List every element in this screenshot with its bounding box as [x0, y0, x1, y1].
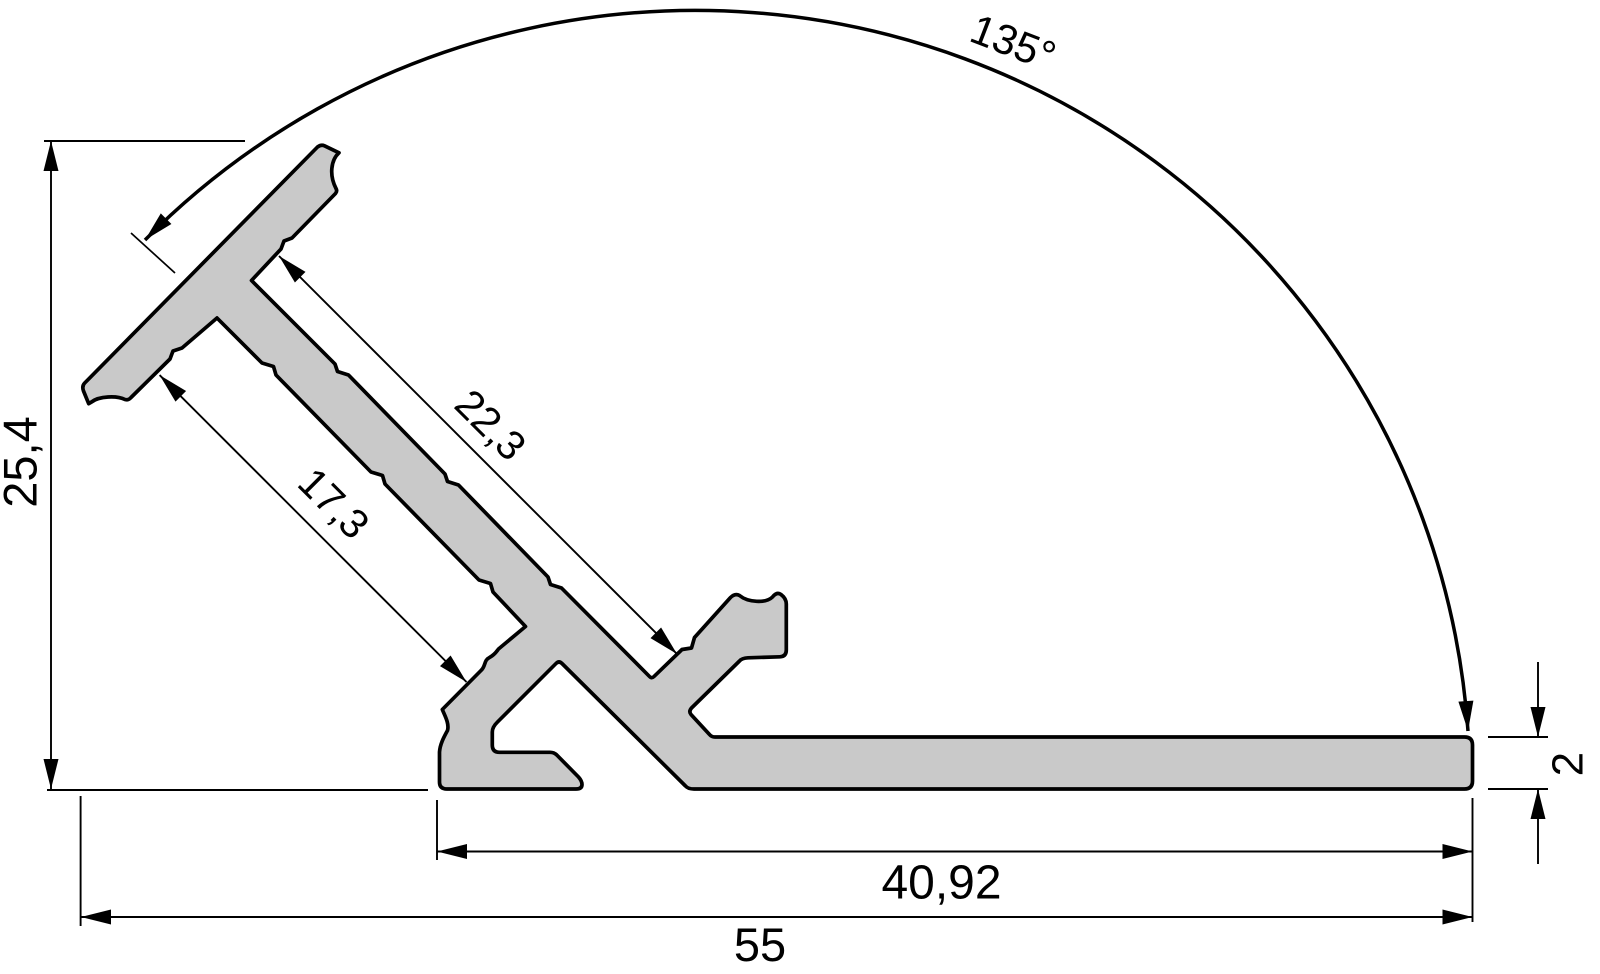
svg-text:40,92: 40,92: [881, 857, 1001, 910]
svg-text:55: 55: [734, 918, 786, 971]
svg-text:2: 2: [1544, 752, 1593, 776]
svg-text:25,4: 25,4: [0, 416, 47, 507]
